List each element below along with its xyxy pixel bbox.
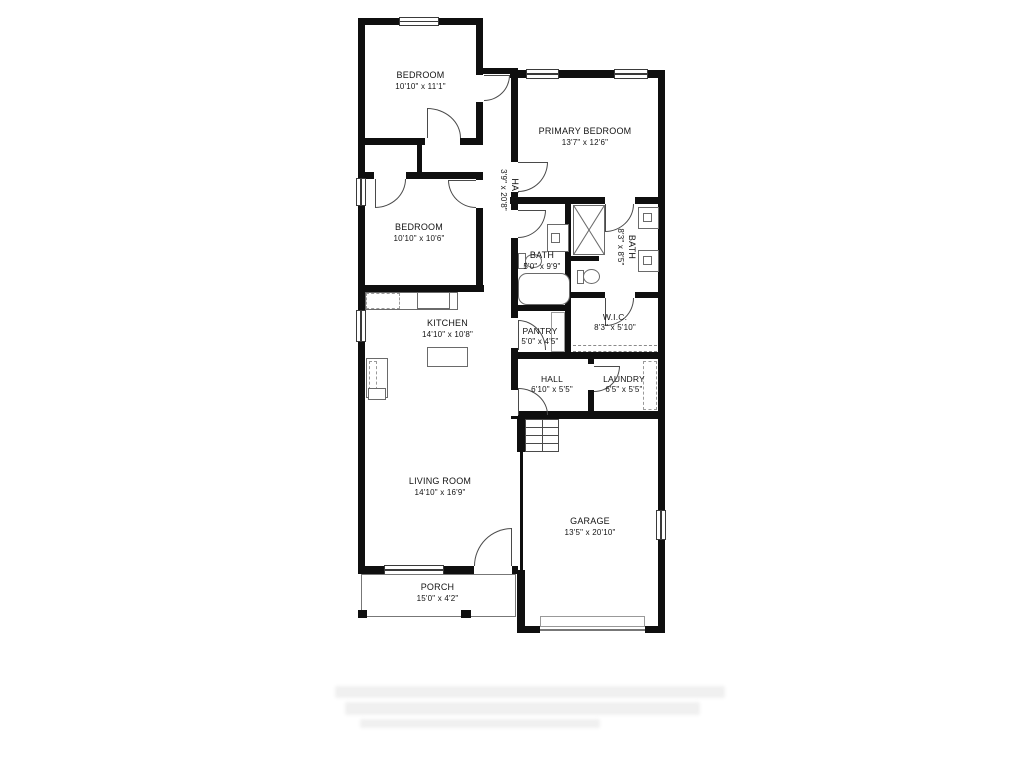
faucet: [643, 256, 652, 265]
door-opening: [476, 180, 483, 208]
wall: [358, 18, 365, 290]
wall: [460, 138, 483, 145]
floor-plan: BEDROOM 10'10" x 11'1" PRIMARY BEDROOM 1…: [0, 0, 1024, 768]
bathtub: [518, 273, 570, 305]
wall: [517, 419, 525, 452]
door-arc-primary-bedroom: [518, 162, 548, 192]
room-name: GARAGE: [520, 516, 660, 528]
room-name: LIVING ROOM: [365, 476, 515, 488]
wall: [520, 452, 523, 570]
room-name: HALL: [514, 374, 590, 385]
room-name: PRIMARY BEDROOM: [510, 126, 660, 138]
room-dims: 14'10" x 10'8": [375, 330, 520, 340]
room-dims: 14'10" x 16'9": [365, 488, 515, 498]
room-label-primary-bedroom: PRIMARY BEDROOM 13'7" x 12'6": [510, 126, 660, 148]
front-door-arc: [474, 528, 512, 566]
door-arc-bedroom-top: [484, 75, 510, 101]
shower-wall-stub: [571, 256, 599, 261]
stairs-divider: [542, 420, 543, 451]
room-dims: 10'10" x 11'1": [358, 82, 483, 92]
porch-post: [461, 610, 471, 618]
room-name: BEDROOM: [358, 70, 483, 82]
window: [614, 69, 648, 79]
garage-door-panel: [540, 616, 645, 627]
room-name: W.I.C.: [572, 312, 658, 323]
room-dims: 10'10" x 10'6": [358, 234, 480, 244]
kitchen-island: [427, 347, 468, 367]
room-label-bedroom-top: BEDROOM 10'10" x 11'1": [358, 70, 483, 92]
faint-watermark: [345, 702, 700, 715]
room-dims: 6'5" x 5'5": [590, 385, 658, 395]
room-name: BATH: [625, 207, 637, 287]
room-name: BATH: [511, 250, 573, 262]
room-dims: 3'9" x 20'8": [498, 146, 508, 234]
room-label-garage: GARAGE 13'5" x 20'10": [520, 516, 660, 538]
room-label-kitchen: KITCHEN 14'10" x 10'8": [375, 318, 520, 340]
porch-post: [358, 610, 367, 618]
faint-watermark: [335, 686, 725, 698]
passage-opening: [484, 285, 511, 292]
wall: [358, 138, 425, 145]
room-label-pantry: PANTRY 5'0" x 4'5": [508, 326, 572, 347]
cabinet: [368, 388, 386, 400]
kitchen-upper-cabinets: [366, 293, 400, 309]
room-dims: 13'5" x 20'10": [520, 528, 660, 538]
room-label-laundry: LAUNDRY 6'5" x 5'5": [590, 374, 658, 395]
door-opening: [374, 172, 406, 179]
room-label-bath-primary: BATH 8'3" x 8'5": [611, 207, 637, 287]
faucet: [551, 233, 560, 243]
wall: [511, 68, 518, 418]
room-label-living-room: LIVING ROOM 14'10" x 16'9": [365, 476, 515, 498]
window: [399, 17, 439, 26]
room-name: HALL: [508, 146, 520, 234]
toilet-bowl: [583, 269, 600, 284]
stairs: [525, 419, 559, 452]
room-dims: 6'10" x 5'5": [514, 385, 590, 395]
wall: [511, 352, 662, 359]
door-arc-closet-left: [375, 179, 406, 208]
room-dims: 13'7" x 12'6": [510, 138, 660, 148]
wall: [483, 68, 513, 74]
room-label-hall-lower: HALL 6'10" x 5'5": [514, 374, 590, 395]
room-dims: 5'0" x 4'5": [508, 337, 572, 347]
room-label-porch: PORCH 15'0" x 4'2": [370, 582, 505, 604]
kitchen-range: [417, 292, 450, 309]
room-label-wic: W.I.C. 8'3" x 5'10": [572, 312, 658, 333]
door-arc-closet-right: [427, 108, 461, 138]
door-arc-bath-hall: [518, 210, 546, 238]
room-label-bath-hall: BATH 5'0" x 9'9": [511, 250, 573, 272]
room-name: LAUNDRY: [590, 374, 658, 385]
room-label-bedroom-middle: BEDROOM 10'10" x 10'6": [358, 222, 480, 244]
wall: [510, 197, 665, 204]
window: [526, 69, 559, 79]
room-dims: 15'0" x 4'2": [370, 594, 505, 604]
shower-x-mark: [574, 206, 604, 254]
wall: [517, 570, 525, 628]
wall: [476, 18, 483, 75]
room-dims: 5'0" x 9'9": [511, 262, 573, 272]
closet-rod-dashed: [573, 345, 657, 352]
faucet: [643, 213, 652, 222]
room-name: BEDROOM: [358, 222, 480, 234]
front-door-opening: [474, 566, 512, 574]
room-name: PANTRY: [508, 326, 572, 337]
garage-door-line: [540, 629, 645, 631]
window: [356, 178, 366, 206]
room-name: PORCH: [370, 582, 505, 594]
window: [356, 310, 366, 342]
room-dims: 8'3" x 5'10": [572, 323, 658, 333]
door-opening: [605, 197, 635, 204]
door-arc-bedroom-middle: [448, 180, 476, 208]
faint-watermark: [360, 719, 600, 728]
room-label-hall-upper: HALL 3'9" x 20'8": [494, 146, 520, 234]
room-dims: 8'3" x 8'5": [615, 207, 625, 287]
shower: [573, 205, 605, 255]
wall: [511, 305, 571, 311]
room-name: KITCHEN: [375, 318, 520, 330]
